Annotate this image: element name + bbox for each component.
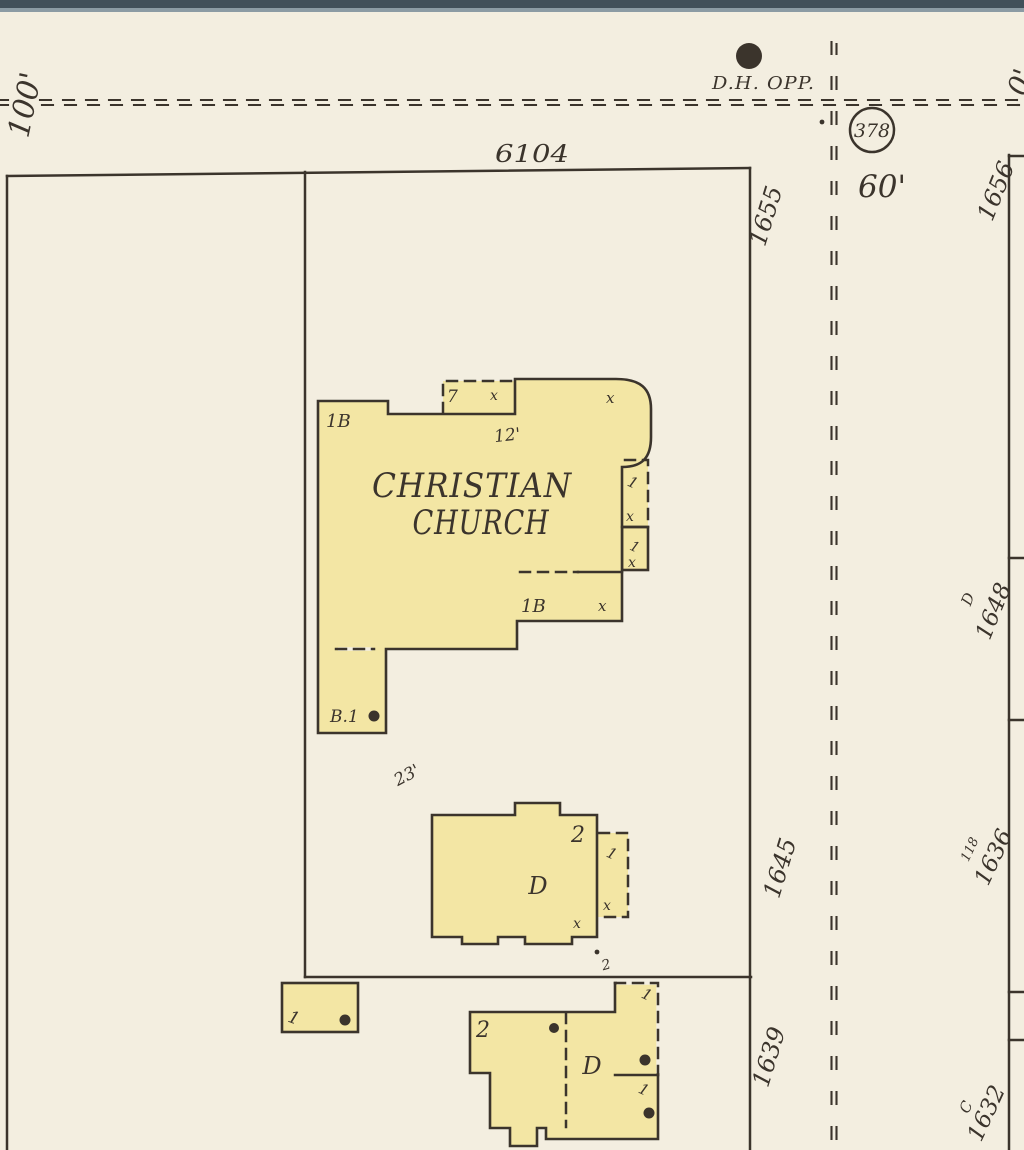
church-stories-label: 1B <box>326 411 351 432</box>
shed-building: 1 <box>282 983 358 1032</box>
mid-dwelling-code-label: D <box>527 872 547 900</box>
map-canvas: CHRISTIAN CHURCH 1B 7 x x 12' 1 x 1 x 1B… <box>0 0 1024 1150</box>
sanborn-map-sheet: CHRISTIAN CHURCH 1B 7 x x 12' 1 x 1 x 1B… <box>0 0 1024 1150</box>
mid-dwelling-porch-flag: x <box>603 898 611 914</box>
sheet-top-edge <box>0 0 1024 12</box>
mid-dwelling-stories-label: 2 <box>570 823 585 848</box>
church-name-line2: CHURCH <box>413 503 550 543</box>
survey-point-dot <box>820 120 825 125</box>
bottom-dwelling-chimney-dot-3 <box>644 1108 655 1119</box>
mid-dwelling-flag: x <box>573 916 581 932</box>
church-basement-note: B.1 <box>329 707 359 727</box>
utility-symbol-dot <box>736 43 762 69</box>
street-width-east-label: 60' <box>858 169 906 205</box>
church-front-porch-width-label: 7 <box>447 387 458 407</box>
bottom-dwelling-stories-label: 2 <box>475 1018 490 1043</box>
block-number-label: 378 <box>854 120 890 142</box>
bottom-dwelling-code-label: D <box>581 1052 601 1080</box>
church-corner-flag: x <box>606 389 615 407</box>
sheet-edge-dark-band <box>0 0 1024 8</box>
utility-note-label: D.H. OPP. <box>711 73 815 94</box>
church-wing-flag: x <box>598 597 607 615</box>
church-name-line1: CHRISTIAN <box>372 466 572 506</box>
mid-dwelling-rear-dot <box>595 950 600 955</box>
church-front-dim-label: 12' <box>493 424 521 447</box>
church-wing-stories-label: 1B <box>521 596 546 617</box>
church-chimney-dot <box>369 711 380 722</box>
sheet-edge-light-band <box>0 8 1024 12</box>
bottom-dwelling-chimney-dot-2 <box>640 1055 651 1066</box>
church-side-porch-flag-a: x <box>626 509 634 525</box>
bottom-dwelling-chimney-dot-1 <box>549 1023 559 1033</box>
lot-number-label: 6104 <box>495 140 569 168</box>
shed-chimney-dot <box>340 1015 351 1026</box>
church-side-porch-flag-b: x <box>628 555 636 571</box>
church-front-porch-flag: x <box>490 388 498 404</box>
